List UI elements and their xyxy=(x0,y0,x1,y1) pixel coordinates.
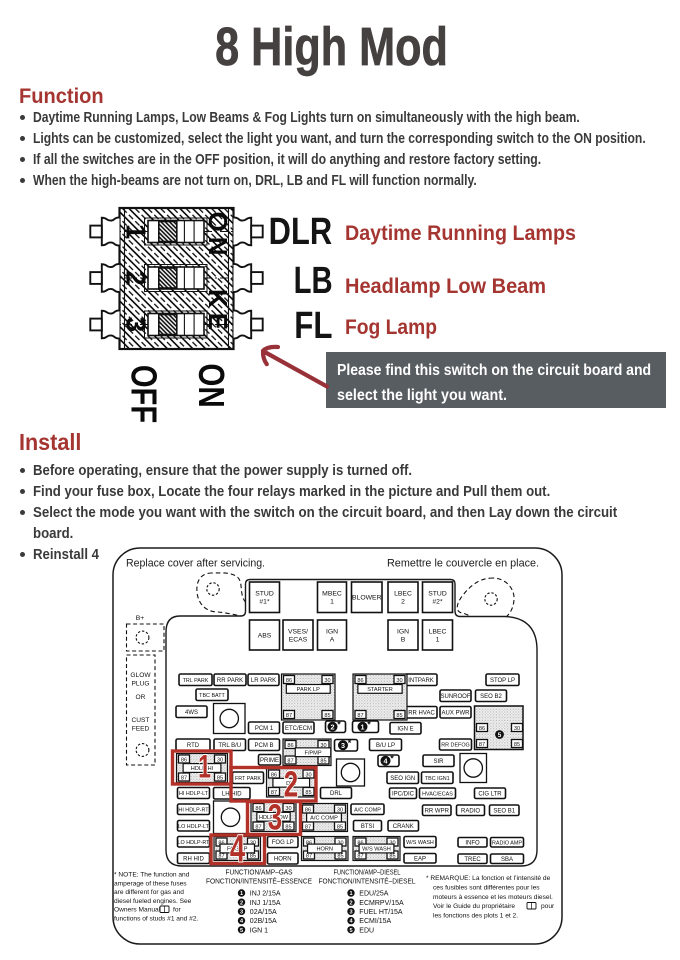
svg-text:STARTER: STARTER xyxy=(367,687,393,693)
svg-text:87: 87 xyxy=(255,824,261,830)
svg-text:KE: KE xyxy=(203,289,233,335)
svg-text:3: 3 xyxy=(349,910,352,916)
svg-text:87: 87 xyxy=(479,742,485,748)
svg-text:SIR: SIR xyxy=(433,759,444,765)
svg-text:2: 2 xyxy=(401,599,405,606)
svg-text:Voir le Guide du propriétaire: Voir le Guide du propriétaire xyxy=(433,903,515,910)
svg-text:2: 2 xyxy=(331,722,335,731)
svg-text:STOP LP: STOP LP xyxy=(490,678,515,684)
svg-text:2: 2 xyxy=(349,900,352,906)
svg-text:CRANK: CRANK xyxy=(393,824,414,830)
svg-text:TREC: TREC xyxy=(464,857,481,863)
svg-text:RR HVAC: RR HVAC xyxy=(408,710,435,716)
svg-text:STUD: STUD xyxy=(428,591,447,598)
svg-text:ETC/ECM: ETC/ECM xyxy=(285,726,312,732)
svg-text:2: 2 xyxy=(240,900,243,906)
svg-text:TBC BATT: TBC BATT xyxy=(199,693,225,699)
svg-text:TRL B/U: TRL B/U xyxy=(218,743,241,749)
svg-text:3: 3 xyxy=(268,797,282,837)
svg-text:IPC/DIC: IPC/DIC xyxy=(392,791,415,797)
svg-text:1: 1 xyxy=(349,891,352,897)
svg-text:ON: ON xyxy=(190,363,231,407)
svg-text:30: 30 xyxy=(324,678,330,684)
svg-text:85: 85 xyxy=(305,790,311,796)
svg-text:* REMARQUE: La fonction et l’: * REMARQUE: La fonction et l’intensité d… xyxy=(426,875,551,882)
svg-text:LBEC: LBEC xyxy=(394,591,412,598)
svg-text:*: * xyxy=(390,754,394,764)
svg-text:B/U LP: B/U LP xyxy=(376,743,395,749)
svg-text:HI HDLP-RT: HI HDLP-RT xyxy=(178,807,209,813)
svg-text:INJ 2/15A: INJ 2/15A xyxy=(250,891,281,898)
svg-text:ECMRPV/15A: ECMRPV/15A xyxy=(359,900,404,907)
svg-text:87: 87 xyxy=(218,853,224,859)
svg-text:INFO: INFO xyxy=(465,840,480,846)
svg-text:INTPARK: INTPARK xyxy=(408,678,434,684)
svg-text:ECMI/15A: ECMI/15A xyxy=(359,918,391,925)
svg-text:HORN: HORN xyxy=(317,847,333,853)
svg-text:2: 2 xyxy=(121,270,152,285)
svg-text:B+: B+ xyxy=(136,615,145,622)
svg-text:1: 1 xyxy=(240,891,243,897)
svg-text:30: 30 xyxy=(217,757,223,763)
svg-text:5: 5 xyxy=(240,928,243,934)
svg-text:EDU/25A: EDU/25A xyxy=(359,891,389,898)
svg-text:A/C COMP: A/C COMP xyxy=(354,807,381,813)
svg-text:86: 86 xyxy=(479,726,485,732)
svg-text:85: 85 xyxy=(285,824,291,830)
svg-text:FUEL HT/15A: FUEL HT/15A xyxy=(359,909,403,916)
svg-text:RADIO AMP: RADIO AMP xyxy=(492,840,522,846)
svg-text:LR PARK: LR PARK xyxy=(251,678,276,684)
svg-text:EDU: EDU xyxy=(359,927,374,934)
svg-text:86: 86 xyxy=(181,757,187,763)
svg-text:ABS: ABS xyxy=(258,632,272,639)
svg-text:LO HDLP-RT: LO HDLP-RT xyxy=(178,840,211,846)
svg-text:85: 85 xyxy=(514,742,520,748)
svg-text:are different for gas and: are different for gas and xyxy=(114,889,184,896)
svg-text:87: 87 xyxy=(357,853,363,859)
svg-text:*: * xyxy=(367,720,371,730)
svg-text:30: 30 xyxy=(396,678,402,684)
svg-text:85: 85 xyxy=(396,713,402,719)
svg-text:FONCTION/INTENSITÉ–DIESEL: FONCTION/INTENSITÉ–DIESEL xyxy=(319,877,416,886)
svg-text:CUST: CUST xyxy=(132,717,150,724)
svg-text:86: 86 xyxy=(286,678,292,684)
svg-text:1: 1 xyxy=(121,224,152,239)
svg-text:DRL: DRL xyxy=(330,791,343,797)
svg-text:3: 3 xyxy=(121,317,152,332)
svg-text:SEO B1: SEO B1 xyxy=(493,808,515,814)
svg-text:Replace cover after servicing.: Replace cover after servicing. xyxy=(126,558,265,570)
svg-text:A/C COMP: A/C COMP xyxy=(310,816,338,822)
svg-text:FEED: FEED xyxy=(132,726,150,733)
svg-text:PLUG: PLUG xyxy=(132,681,150,688)
svg-text:5: 5 xyxy=(498,732,502,739)
svg-text:IGN: IGN xyxy=(326,628,338,635)
svg-text:W/S WASH: W/S WASH xyxy=(362,847,391,853)
svg-text:85: 85 xyxy=(320,758,326,764)
svg-text:BLOWER: BLOWER xyxy=(352,595,382,602)
svg-text:RR WPR: RR WPR xyxy=(425,808,450,814)
svg-text:HORN: HORN xyxy=(274,857,292,863)
svg-text:85: 85 xyxy=(217,775,223,781)
svg-text:85: 85 xyxy=(389,853,395,859)
svg-text:les fonctions des plots 1 et 2: les fonctions des plots 1 et 2. xyxy=(433,913,518,920)
svg-text:87: 87 xyxy=(286,713,292,719)
svg-text:LBEC: LBEC xyxy=(429,628,447,635)
svg-text:* NOTE: The function and: * NOTE: The function and xyxy=(114,872,190,879)
svg-text:#2*: #2* xyxy=(432,599,443,606)
svg-text:ECAS: ECAS xyxy=(289,636,308,643)
svg-text:TBC IGN1: TBC IGN1 xyxy=(425,776,450,782)
svg-text:PARK LP: PARK LP xyxy=(297,687,320,693)
svg-text:IGN 1: IGN 1 xyxy=(250,927,268,934)
svg-text:1: 1 xyxy=(198,749,211,785)
svg-text:LO HDLP-LT: LO HDLP-LT xyxy=(178,824,209,830)
svg-text:30: 30 xyxy=(514,726,520,732)
svg-text:30: 30 xyxy=(337,807,343,813)
svg-text:FRT PARK: FRT PARK xyxy=(235,776,261,782)
svg-text:HI HDLP-LT: HI HDLP-LT xyxy=(179,791,209,797)
svg-text:FONCTION/INTENSITÉ–ESSENCE: FONCTION/INTENSITÉ–ESSENCE xyxy=(206,877,312,886)
svg-text:FUNCTION/AMP–DIESEL: FUNCTION/AMP–DIESEL xyxy=(334,868,401,877)
svg-text:MBEC: MBEC xyxy=(322,591,342,598)
svg-text:TRL PARK: TRL PARK xyxy=(183,678,209,684)
svg-text:86: 86 xyxy=(271,772,277,778)
svg-text:pour: pour xyxy=(541,903,555,910)
svg-text:86: 86 xyxy=(305,807,311,813)
svg-text:EAP: EAP xyxy=(414,856,426,862)
svg-text:1: 1 xyxy=(361,722,365,731)
svg-text:functions of studs #1 and #2.: functions of studs #1 and #2. xyxy=(114,916,198,923)
svg-text:RR DEFOG: RR DEFOG xyxy=(441,743,469,749)
svg-text:HVAC/ECAS: HVAC/ECAS xyxy=(422,791,453,797)
svg-text:OFF: OFF xyxy=(123,365,164,423)
svg-text:87: 87 xyxy=(305,824,311,830)
svg-text:5: 5 xyxy=(349,928,352,934)
svg-text:STUD: STUD xyxy=(255,591,274,598)
svg-text:RR PARK: RR PARK xyxy=(217,678,243,684)
svg-text:3: 3 xyxy=(341,741,345,750)
svg-text:B: B xyxy=(401,636,406,643)
svg-text:87: 87 xyxy=(357,713,363,719)
svg-text:1: 1 xyxy=(330,599,334,606)
svg-text:86: 86 xyxy=(255,806,261,812)
svg-text:85: 85 xyxy=(324,713,330,719)
svg-text:for: for xyxy=(173,907,181,914)
svg-text:30: 30 xyxy=(305,772,311,778)
svg-text:85: 85 xyxy=(337,853,343,859)
svg-text:85: 85 xyxy=(337,824,343,830)
svg-text:#1*: #1* xyxy=(259,599,270,606)
svg-text:SUNROOF: SUNROOF xyxy=(441,694,471,700)
svg-text:diesel fueled engines. See: diesel fueled engines. See xyxy=(114,898,192,905)
svg-text:RH HID: RH HID xyxy=(183,856,204,862)
svg-text:CIG LTR: CIG LTR xyxy=(478,791,502,797)
svg-text:87: 87 xyxy=(306,853,312,859)
svg-text:87: 87 xyxy=(287,758,293,764)
svg-text:85: 85 xyxy=(250,853,256,859)
svg-text:INJ 1/15A: INJ 1/15A xyxy=(250,900,281,907)
svg-text:VSES/: VSES/ xyxy=(288,628,308,635)
svg-text:ces fusibles sont différentes: ces fusibles sont différentes pour les xyxy=(433,884,540,891)
svg-text:A: A xyxy=(330,636,335,643)
svg-text:F/PMP: F/PMP xyxy=(304,750,321,756)
svg-text:W/S WASH: W/S WASH xyxy=(406,840,434,846)
svg-text:SEO IGN: SEO IGN xyxy=(390,776,415,782)
svg-text:*: * xyxy=(337,720,341,730)
svg-text:02B/15A: 02B/15A xyxy=(250,918,277,925)
svg-text:IGN: IGN xyxy=(397,628,409,635)
svg-text:AUX PWR: AUX PWR xyxy=(441,710,470,716)
svg-text:IGN E: IGN E xyxy=(397,726,413,732)
svg-text:1: 1 xyxy=(436,636,440,643)
svg-text:Remettre le couvercle en place: Remettre le couvercle en place. xyxy=(387,558,539,570)
svg-text:GLOW: GLOW xyxy=(130,672,151,679)
svg-text:87: 87 xyxy=(271,790,277,796)
svg-text:OR: OR xyxy=(136,694,146,701)
svg-text:RADIO: RADIO xyxy=(461,808,480,814)
svg-text:SBA: SBA xyxy=(501,857,513,863)
svg-text:87: 87 xyxy=(181,775,187,781)
svg-text:BTSI: BTSI xyxy=(361,824,375,830)
svg-text:02A/15A: 02A/15A xyxy=(250,909,277,916)
svg-text:Owners Manual: Owners Manual xyxy=(114,907,161,914)
svg-text:FUNCTION/AMP–GAS: FUNCTION/AMP–GAS xyxy=(226,868,293,877)
svg-text:*: * xyxy=(348,738,352,748)
svg-text:amperage of these fuses: amperage of these fuses xyxy=(114,880,187,887)
svg-text:SEO B2: SEO B2 xyxy=(480,694,502,700)
svg-text:moteurs à essence et les moteu: moteurs à essence et les moteurs diesel. xyxy=(433,894,553,901)
svg-text:4: 4 xyxy=(384,756,388,765)
svg-text:2: 2 xyxy=(284,764,298,804)
svg-text:PCM 1: PCM 1 xyxy=(255,726,274,732)
svg-text:PCM B: PCM B xyxy=(254,743,273,749)
svg-text:86: 86 xyxy=(357,678,363,684)
svg-text:ON: ON xyxy=(203,212,233,261)
svg-text:86: 86 xyxy=(287,743,293,749)
svg-text:30: 30 xyxy=(285,806,291,812)
svg-text:4WS: 4WS xyxy=(185,710,198,716)
svg-text:FOG LP: FOG LP xyxy=(272,840,294,846)
svg-text:PRIME: PRIME xyxy=(260,758,279,764)
svg-text:3: 3 xyxy=(240,910,243,916)
svg-text:4: 4 xyxy=(230,828,246,870)
